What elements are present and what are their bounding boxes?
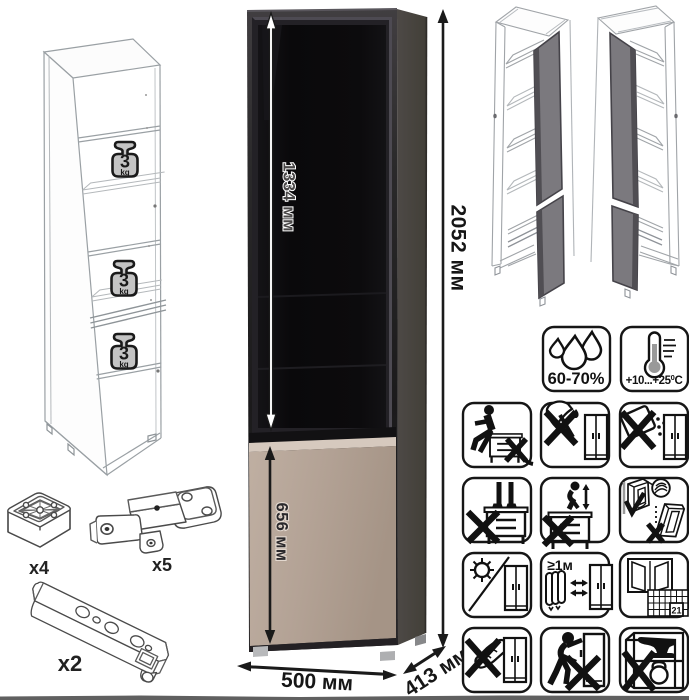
svg-text:kg: kg xyxy=(119,360,128,369)
svg-text:x2: x2 xyxy=(58,651,82,676)
svg-text:x5: x5 xyxy=(152,555,172,575)
svg-text:1334 мм: 1334 мм xyxy=(280,162,299,232)
svg-text:x4: x4 xyxy=(29,558,49,578)
svg-text:2052 мм: 2052 мм xyxy=(446,204,469,291)
svg-text:500 мм: 500 мм xyxy=(281,669,354,696)
svg-text:60-70%: 60-70% xyxy=(548,370,605,388)
svg-text:kg: kg xyxy=(120,168,129,177)
svg-text:kg: kg xyxy=(119,287,128,296)
svg-text:21: 21 xyxy=(671,606,681,616)
svg-text:656 мм: 656 мм xyxy=(273,503,291,562)
svg-text:+10...+250С: +10...+250С xyxy=(626,373,683,387)
